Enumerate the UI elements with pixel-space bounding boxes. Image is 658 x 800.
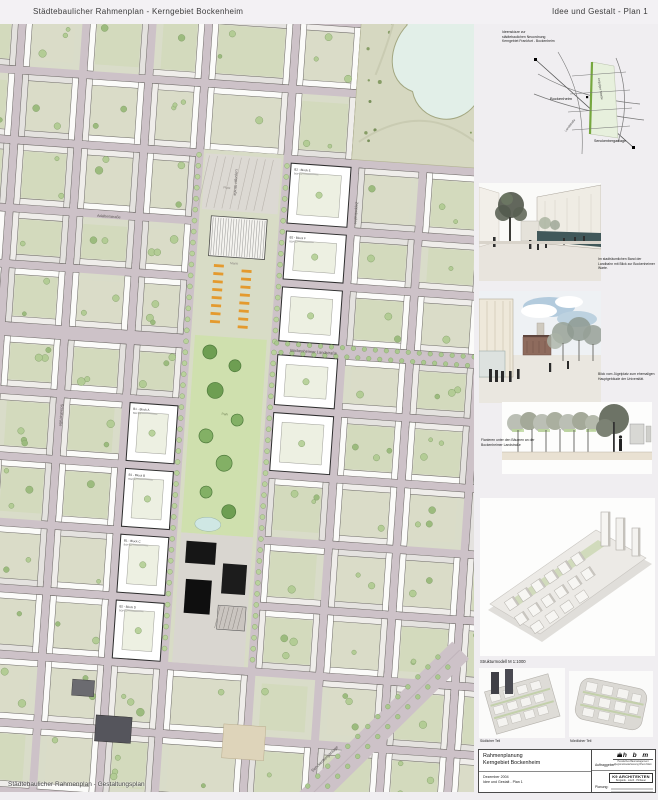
planner-address-lines	[611, 787, 653, 792]
model-north-caption: Nördlicher Teil	[570, 739, 591, 744]
locator-label-district: Bockenheim	[550, 96, 573, 101]
svg-text:BGF m²: BGF m²	[294, 172, 303, 176]
perspective-view-1-image	[479, 183, 601, 281]
master-plan-map: B1 - Block ABGF m²B1 - Block BBGF m²B1 -…	[0, 24, 474, 792]
structural-model-image	[480, 498, 655, 656]
map-overlay-caption: Städtebaulicher Rahmenplan - Gestaltungs…	[8, 781, 145, 788]
svg-text:BGF m²: BGF m²	[119, 609, 128, 613]
client-logo: h b m Hessisches Baumanagement Regionaln…	[613, 751, 653, 766]
svg-text:Platz: Platz	[223, 186, 231, 191]
model-north-image	[569, 671, 653, 737]
perspective-view-1-caption: Im stadträumlichen Band der Landbahn mit…	[598, 257, 656, 271]
svg-text:Markt: Markt	[230, 261, 238, 266]
sheet-title-left: Städtebaulicher Rahmenplan - Kerngebiet …	[33, 7, 243, 16]
project-title-line1: Rahmenplanung	[483, 753, 540, 760]
title-block-parties-cell: Auftraggeber: h b m Hessisches Baumanage…	[592, 750, 655, 792]
model-south-image	[479, 668, 565, 738]
svg-text:BGF m²: BGF m²	[289, 240, 298, 244]
plan-map-canvas: B1 - Block ABGF m²B1 - Block BBGF m²B1 -…	[0, 24, 474, 792]
title-block-project-cell: Rahmenplanung Kerngebiet Bockenheim Deze…	[479, 750, 592, 792]
locator-label-west: Landstraße	[564, 118, 577, 133]
locator-label-south: Senckenberganlage	[594, 139, 626, 143]
svg-text:Park: Park	[221, 412, 228, 416]
hbm-lion-icon	[616, 751, 623, 758]
perspective-view-2-caption: Blick vom Jügelplatz zum ehemaligen Haup…	[598, 372, 656, 381]
locator-sketch: Bockenheim Senckenberganlage Leipziger S…	[528, 42, 652, 164]
title-block: Rahmenplanung Kerngebiet Bockenheim Deze…	[478, 749, 656, 793]
client-subline-2: Regionalniederlassung Rhein-Main	[613, 763, 653, 766]
svg-text:BGF m²: BGF m²	[124, 543, 133, 547]
svg-text:BGF m²: BGF m²	[128, 478, 137, 482]
boulevard-sketch-caption: Flanieren unter den Bäumen an der Bocken…	[481, 438, 553, 447]
sheet-title-right: Idee und Gestalt - Plan 1	[552, 7, 648, 16]
structural-model-caption: Strukturmodell M 1:1000	[480, 659, 526, 664]
svg-text:BGF m²: BGF m²	[133, 412, 142, 416]
project-title-line2: Kerngebiet Bockenheim	[483, 760, 540, 767]
planner-label: Planung:	[595, 785, 608, 789]
sheet-header: Städtebaulicher Rahmenplan - Kerngebiet …	[0, 0, 658, 24]
planner-logo: K9 ARCHITEKTEN Borgards · Lösch · Piriba…	[609, 773, 653, 783]
perspective-view-2-image	[479, 291, 601, 403]
sheet-name: Idee und Gestalt - Plan 1	[483, 780, 523, 785]
model-south-caption: Südlicher Teil	[480, 739, 500, 744]
